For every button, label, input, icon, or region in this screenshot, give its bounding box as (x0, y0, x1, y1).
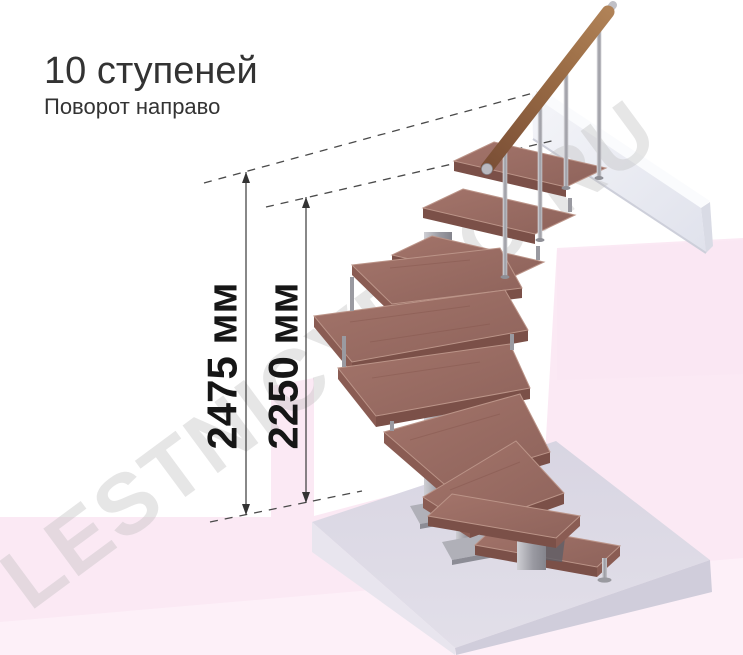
floor-shade-right (557, 240, 743, 380)
dimension-2250-label: 2250 мм (260, 282, 307, 449)
dimension-2475-label: 2475 мм (199, 282, 246, 449)
baluster (597, 28, 602, 178)
handrail-end-cap (482, 164, 493, 175)
baluster (503, 148, 508, 277)
baluster (538, 102, 543, 240)
page-title: 10 ступеней (44, 50, 258, 92)
staircase-diagram: LESTNICYPRO.RU (0, 0, 743, 655)
staircase-diagram-page: LESTNICYPRO.RU (0, 0, 743, 655)
baluster (564, 68, 569, 188)
page-subtitle: Поворот направо (44, 94, 220, 119)
